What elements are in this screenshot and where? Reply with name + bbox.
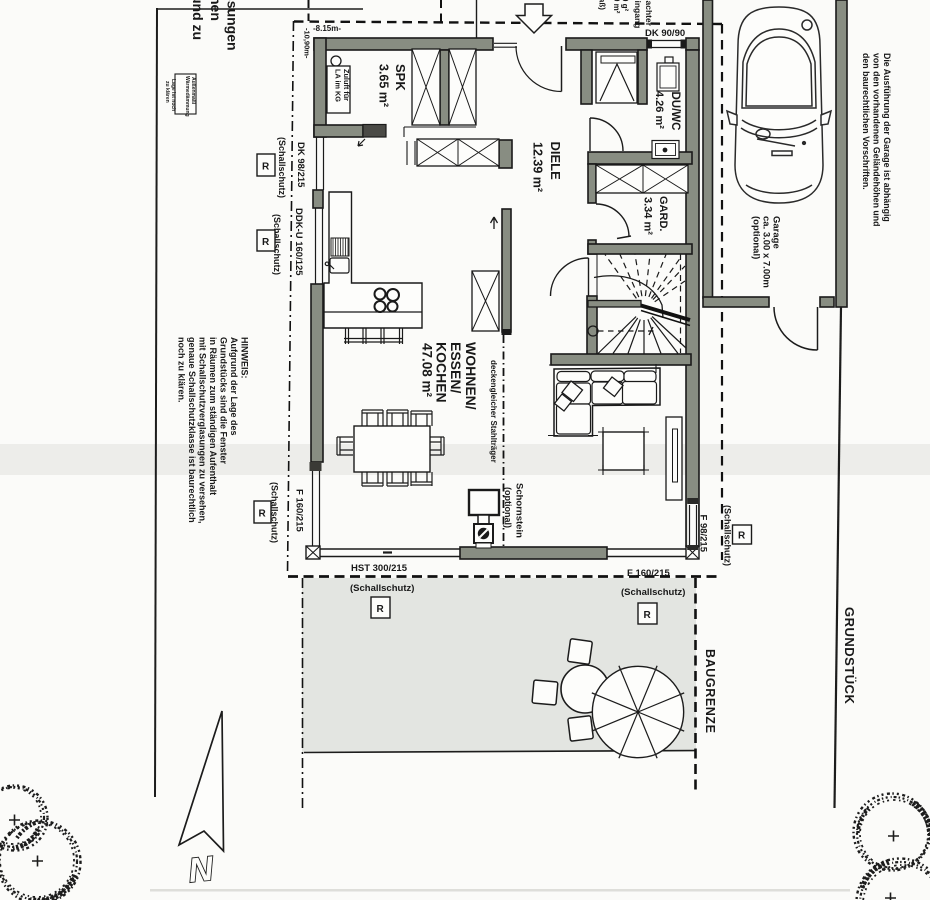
svg-text:-10,90m-: -10,90m- <box>303 28 312 59</box>
svg-text:12.39 m²: 12.39 m² <box>531 142 545 192</box>
svg-text:R: R <box>262 162 270 173</box>
svg-text:HINWEIS:: HINWEIS: <box>240 337 250 379</box>
svg-text:WOHNEN/: WOHNEN/ <box>463 342 479 410</box>
svg-text:(Schallschutz): (Schallschutz) <box>723 505 733 566</box>
svg-text:4.26 m²: 4.26 m² <box>653 91 665 129</box>
svg-text:(Schallschutz): (Schallschutz) <box>277 137 287 198</box>
svg-text:DIELE: DIELE <box>548 142 563 181</box>
svg-text:naß): naß) <box>598 0 607 10</box>
svg-text:Grundstücks sind die Fenster: Grundstücks sind die Fenster <box>219 337 229 465</box>
svg-text:LA im KG: LA im KG <box>334 69 343 102</box>
svg-text:R: R <box>377 604 385 615</box>
svg-text:0 g²: 0 g² <box>621 0 630 12</box>
svg-text:GRUNDSTÜCK: GRUNDSTÜCK <box>842 607 857 705</box>
svg-text:F 160/215: F 160/215 <box>627 568 670 579</box>
svg-text:9 m²: 9 m² <box>612 0 621 14</box>
svg-text:47.08 m²: 47.08 m² <box>420 343 435 398</box>
svg-text:mit Schallschutzverglasungen z: mit Schallschutzverglasungen zu versehen… <box>198 337 208 524</box>
svg-text:(Schallschutz): (Schallschutz) <box>621 587 685 598</box>
svg-text:Wärmedämmung: Wärmedämmung <box>184 76 190 117</box>
svg-text:genaue Schallschutzklasse ist: genaue Schallschutzklasse ist baurechtli… <box>187 337 197 523</box>
svg-text:ssungen: ssungen <box>225 0 241 51</box>
svg-text:R: R <box>738 531 746 542</box>
svg-text:deckengleicher Stahlträger: deckengleicher Stahlträger <box>489 360 498 463</box>
svg-text:GARD.: GARD. <box>657 196 669 231</box>
svg-text:(optional): (optional) <box>503 487 513 528</box>
svg-text:3.34 m²: 3.34 m² <box>642 197 654 235</box>
svg-text:(optional): (optional) <box>751 216 762 259</box>
svg-text:Schornstein: Schornstein <box>514 483 525 538</box>
svg-text:DK 98/215: DK 98/215 <box>295 142 306 188</box>
svg-text:noch zu klären.: noch zu klären. <box>177 337 187 403</box>
svg-text:den baurechtlichen Vorschrifte: den baurechtlichen Vorschriften. <box>861 53 871 190</box>
svg-text:DK 90/90: DK 90/90 <box>645 28 685 39</box>
svg-text:BAUGRENZE: BAUGRENZE <box>703 649 717 734</box>
svg-text:in Räumen zum ständigen Aufent: in Räumen zum ständigen Aufenthalt <box>208 337 218 495</box>
svg-text:SPK: SPK <box>393 64 408 91</box>
svg-text:von den vorhandenen Geländehöh: von den vorhandenen Geländehöhen und <box>872 53 882 227</box>
svg-text:und zu: und zu <box>190 0 206 40</box>
svg-text:Aufgrund der Lage des: Aufgrund der Lage des <box>229 337 239 436</box>
svg-text:hen: hen <box>208 0 224 21</box>
svg-text:DU/WC: DU/WC <box>669 92 681 131</box>
svg-text:R: R <box>259 509 267 520</box>
svg-text:3.65 m²: 3.65 m² <box>377 64 391 107</box>
svg-text:F 98/215: F 98/215 <box>698 515 709 553</box>
svg-text:zu klären: zu klären <box>164 81 170 103</box>
svg-text:R: R <box>644 610 652 621</box>
svg-text:DDK-U 160/125: DDK-U 160/125 <box>293 208 304 276</box>
svg-text:-8.15m-: -8.15m- <box>313 24 341 33</box>
svg-text:R: R <box>262 237 270 248</box>
svg-text:ingang: ingang <box>633 1 643 29</box>
svg-text:Die Ausführung der Garage ist: Die Ausführung der Garage ist abhängig <box>882 53 892 222</box>
svg-text:(Schallschutz): (Schallschutz) <box>350 583 414 594</box>
svg-text:F 160/215: F 160/215 <box>294 489 305 532</box>
svg-text:KOCHEN: KOCHEN <box>434 342 450 403</box>
svg-text:HST 300/215: HST 300/215 <box>351 563 408 574</box>
svg-text:achter: achter <box>644 1 654 27</box>
